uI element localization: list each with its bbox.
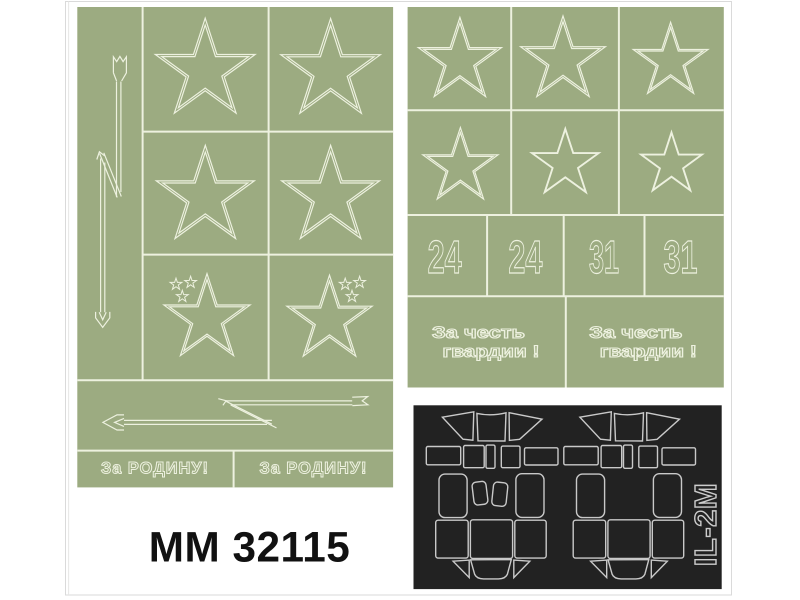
- svg-text:За РОДИНУ!: За РОДИНУ!: [260, 460, 368, 478]
- svg-text:24: 24: [508, 231, 542, 283]
- svg-text:гвардии !: гвардии !: [600, 343, 697, 361]
- svg-text:гвардии !: гвардии !: [443, 343, 540, 361]
- svg-text:За честь: За честь: [589, 324, 682, 342]
- svg-text:IL-2M: IL-2M: [688, 483, 723, 566]
- svg-text:За честь: За честь: [432, 324, 525, 342]
- svg-text:31: 31: [589, 231, 619, 283]
- svg-text:За РОДИНУ!: За РОДИНУ!: [101, 460, 209, 478]
- svg-text:MM 32115: MM 32115: [149, 524, 351, 571]
- svg-text:31: 31: [664, 231, 698, 283]
- svg-text:24: 24: [428, 231, 462, 283]
